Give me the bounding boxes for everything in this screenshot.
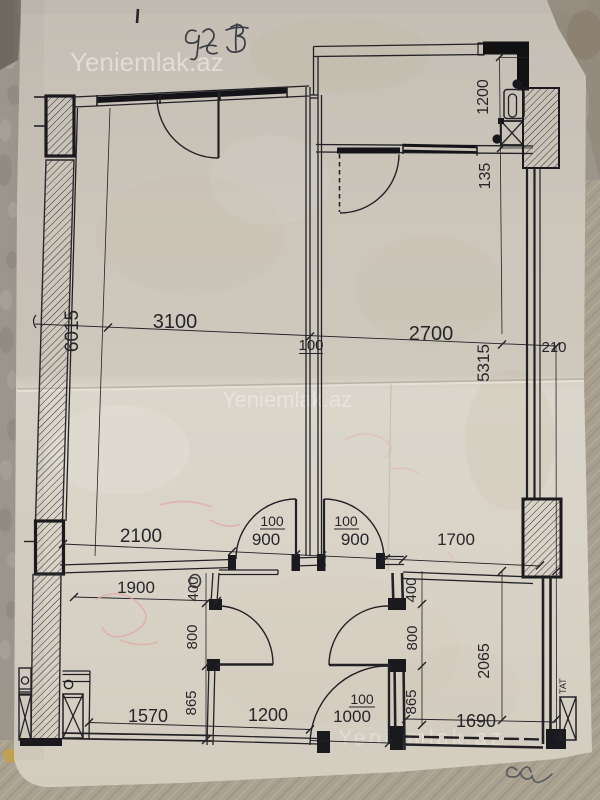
svg-text:2065: 2065 xyxy=(476,643,493,679)
svg-text:Yeniemlak.az: Yeniemlak.az xyxy=(222,387,352,412)
svg-text:1000: 1000 xyxy=(333,707,371,726)
svg-text:100: 100 xyxy=(298,337,323,354)
svg-text:2700: 2700 xyxy=(409,323,454,345)
svg-text:TAT: TAT xyxy=(558,678,568,694)
svg-text:100: 100 xyxy=(334,513,358,529)
svg-text:1690: 1690 xyxy=(456,711,496,731)
svg-text:5315: 5315 xyxy=(474,344,493,382)
svg-text:900: 900 xyxy=(341,530,369,549)
svg-text:3100: 3100 xyxy=(153,311,198,333)
svg-text:1570: 1570 xyxy=(128,706,168,726)
svg-text:210: 210 xyxy=(541,339,566,356)
svg-text:400: 400 xyxy=(185,576,202,601)
svg-text:100: 100 xyxy=(260,513,284,529)
svg-text:6015: 6015 xyxy=(62,310,83,352)
svg-text:1200: 1200 xyxy=(248,705,288,725)
svg-text:135: 135 xyxy=(477,163,494,190)
svg-text:800: 800 xyxy=(404,625,421,650)
svg-text:800: 800 xyxy=(184,624,201,649)
svg-text:900: 900 xyxy=(252,530,280,549)
svg-text:Yeniemlak.az: Yeniemlak.az xyxy=(70,47,224,77)
svg-text:1700: 1700 xyxy=(437,530,475,549)
svg-text:100: 100 xyxy=(350,691,374,707)
svg-text:865: 865 xyxy=(403,689,420,714)
svg-text:865: 865 xyxy=(183,690,200,715)
svg-text:2100: 2100 xyxy=(120,526,162,547)
svg-text:400: 400 xyxy=(403,577,420,602)
svg-text:1200: 1200 xyxy=(475,79,492,115)
